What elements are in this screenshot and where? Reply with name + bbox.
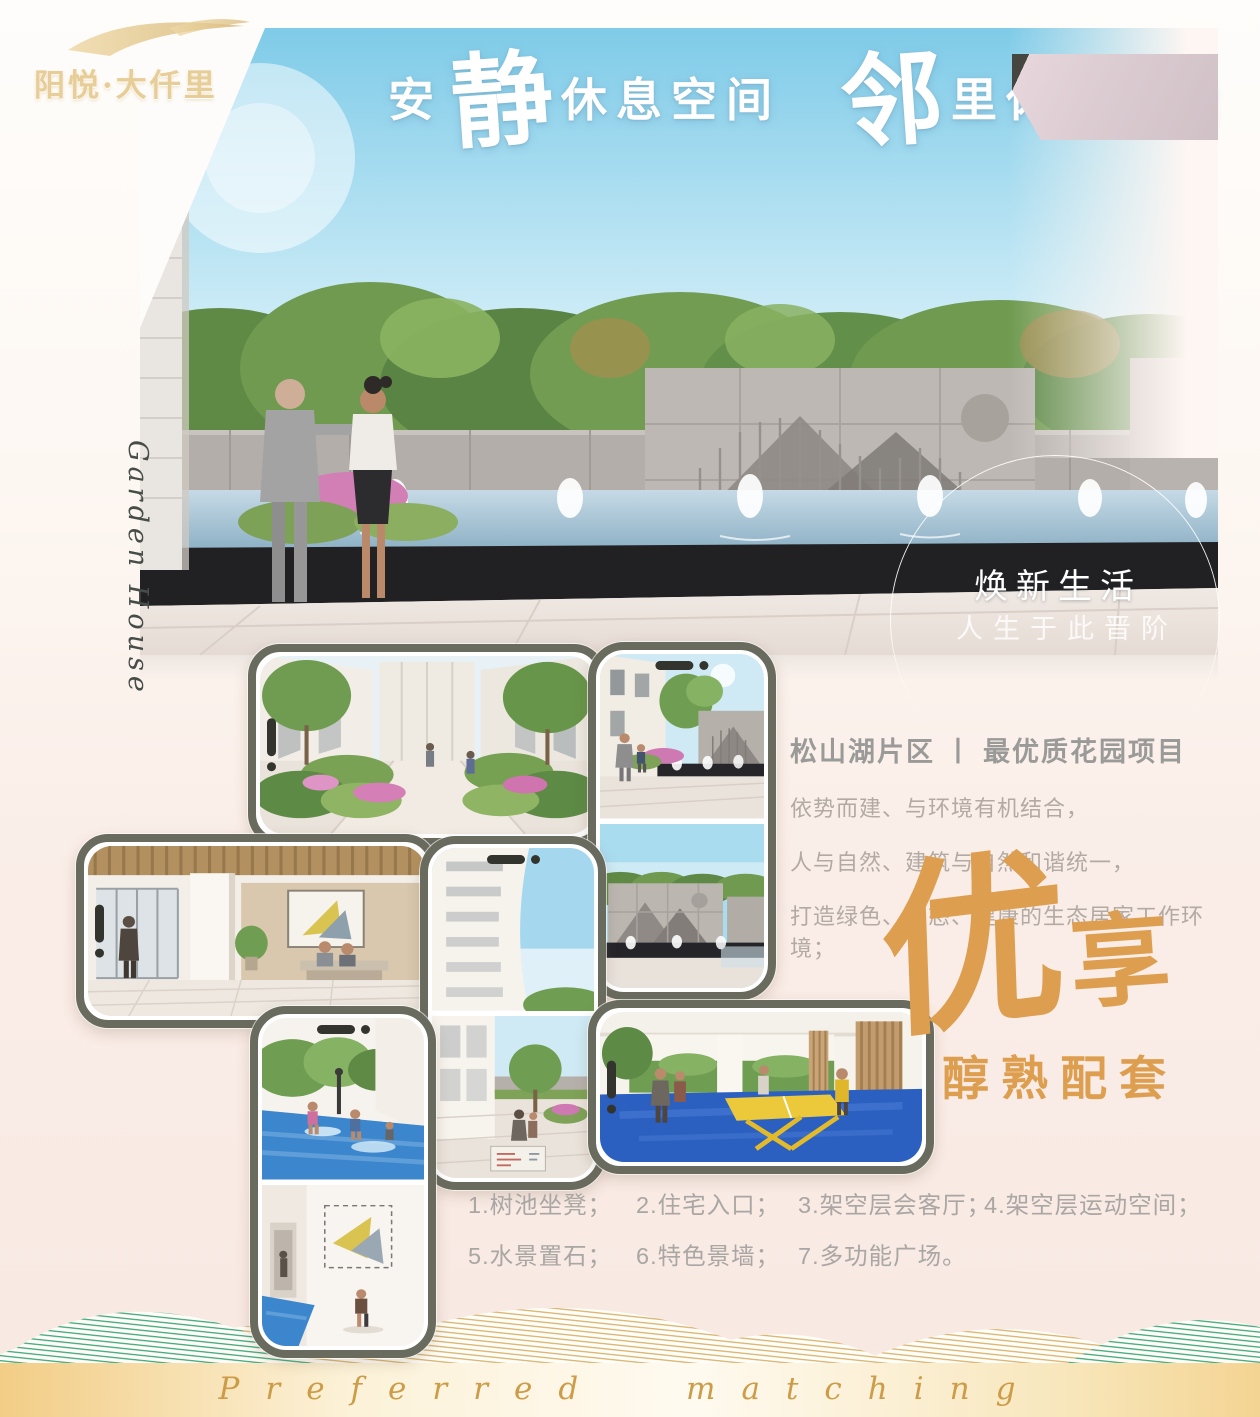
camera-dot-icon <box>700 661 709 670</box>
amenity-item: 4.架空层运动空间； <box>984 1186 1204 1220</box>
feature-calligraphy-char: 享 <box>1067 908 1174 1015</box>
phone-mockup-walkway <box>248 644 606 846</box>
phone-screen <box>260 656 594 834</box>
speaker-pill-icon <box>95 904 104 942</box>
building-courtyard-scene-image <box>432 1016 594 1179</box>
multifunction-scene-image <box>600 1012 922 1162</box>
amenity-item: 6.特色景墙； <box>636 1237 798 1271</box>
amenity-item: 7.多功能广场。 <box>798 1237 984 1271</box>
corner-photo-fragment <box>1012 54 1218 140</box>
speaker-pill-icon <box>267 719 276 757</box>
amenity-item-empty <box>984 1237 1204 1271</box>
badge-line2: 人生于此晋阶 <box>956 607 1178 646</box>
phone-mockup-kids-pool <box>250 1006 436 1358</box>
phone-notch <box>605 1040 617 1135</box>
phone-mockup-courtyard <box>588 642 776 1000</box>
camera-dot-icon <box>607 1104 616 1113</box>
phone-notch <box>292 1023 394 1035</box>
amenity-list: 1.树池坐凳； 2.住宅入口； 3.架空层会客厅； 4.架空层运动空间； 5.水… <box>468 1186 1204 1271</box>
amenity-item: 3.架空层会客厅； <box>798 1186 984 1220</box>
phone-screen <box>88 846 425 1016</box>
phone-mockup-lobby <box>76 834 437 1028</box>
brand-logo: 阳悦·大仟里 <box>34 12 274 122</box>
splash-pool-scene-image <box>262 1018 424 1180</box>
footer-english-text: Preferred matching <box>0 1371 1260 1407</box>
lobby-scene-image <box>88 846 425 1016</box>
feature-callout: 优享 醇熟配套 <box>880 852 1240 1109</box>
garden-house-script: Garden House <box>121 440 153 766</box>
phone-mockup-building <box>420 836 606 1190</box>
title-text: 休息空间 <box>561 64 781 130</box>
phone-notch <box>630 659 733 671</box>
title-calligraphy-char: 静 <box>448 47 557 156</box>
info-line: 依势而建、与环境有机结合， <box>790 791 1230 823</box>
courtyard-scene-image <box>600 654 764 819</box>
phone-notch <box>462 853 564 865</box>
camera-dot-icon <box>361 1025 370 1034</box>
gallery-wall-scene-image <box>262 1185 424 1347</box>
phone-notch <box>93 878 105 985</box>
building-top-scene-image <box>432 848 594 1011</box>
phone-screen <box>262 1018 424 1346</box>
badge-line1: 焕新生活 <box>974 559 1142 608</box>
title-calligraphy-char: 邻 <box>838 47 947 156</box>
footer-gold-band: Preferred matching <box>0 1363 1260 1417</box>
speaker-pill-icon <box>317 1025 355 1034</box>
section-title: 松山湖片区 丨 最优质花园项目 <box>790 730 1230 769</box>
poster-page: 阳悦·大仟里 <box>0 0 1260 1417</box>
walkway-scene-image <box>260 656 594 834</box>
speaker-pill-icon <box>656 661 694 670</box>
camera-dot-icon <box>95 948 104 957</box>
speaker-pill-icon <box>487 855 525 864</box>
phone-screen <box>600 654 764 988</box>
speaker-pill-icon <box>607 1060 616 1098</box>
feature-wall-scene-image <box>600 824 764 989</box>
title-text: 安 <box>388 64 443 130</box>
feature-calligraphy-char: 优 <box>877 840 1068 1049</box>
brand-logo-text: 阳悦·大仟里 <box>34 60 274 105</box>
phone-screen <box>600 1012 922 1162</box>
phone-notch <box>265 689 277 801</box>
camera-dot-icon <box>267 763 276 772</box>
camera-dot-icon <box>531 855 540 864</box>
amenity-item: 1.树池坐凳； <box>468 1186 636 1220</box>
wave-swoosh-icon <box>62 12 252 60</box>
amenity-item: 5.水景置石； <box>468 1237 636 1271</box>
mountain-waves-decoration <box>0 1284 1260 1368</box>
amenity-item: 2.住宅入口； <box>636 1186 798 1220</box>
phone-screen <box>432 848 594 1178</box>
